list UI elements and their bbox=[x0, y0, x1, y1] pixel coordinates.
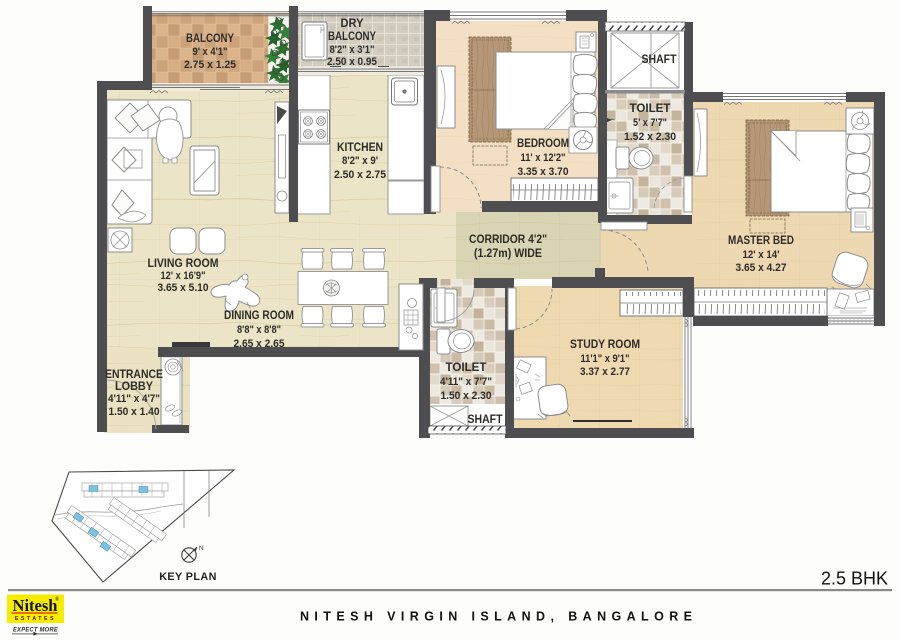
svg-text:1.52 x 2.30: 1.52 x 2.30 bbox=[624, 131, 676, 143]
svg-text:EXPECT MORE: EXPECT MORE bbox=[13, 627, 58, 634]
svg-text:LIVING ROOM: LIVING ROOM bbox=[148, 256, 219, 270]
svg-text:8'2" x 9': 8'2" x 9' bbox=[342, 155, 378, 167]
svg-text:2.50 x 2.75: 2.50 x 2.75 bbox=[334, 169, 387, 181]
svg-text:4'11" x 4'7": 4'11" x 4'7" bbox=[108, 393, 160, 405]
svg-text:Nitesh: Nitesh bbox=[13, 596, 58, 615]
svg-text:DINING ROOM: DINING ROOM bbox=[224, 308, 294, 322]
svg-text:BEDROOM: BEDROOM bbox=[517, 136, 569, 150]
svg-text:SHAFT: SHAFT bbox=[468, 412, 504, 426]
svg-text:BALCONY: BALCONY bbox=[186, 31, 234, 45]
svg-text:®: ® bbox=[55, 596, 60, 603]
svg-text:8'8" x 8'8": 8'8" x 8'8" bbox=[237, 324, 281, 336]
svg-text:(1.27m) WIDE: (1.27m) WIDE bbox=[474, 246, 542, 260]
svg-text:2.5 BHK: 2.5 BHK bbox=[821, 569, 888, 589]
svg-text:9' x 4'1": 9' x 4'1" bbox=[193, 46, 228, 58]
svg-text:DRY: DRY bbox=[341, 16, 364, 30]
svg-text:TOILET: TOILET bbox=[446, 360, 488, 374]
svg-text:12' x 16'9": 12' x 16'9" bbox=[161, 270, 206, 282]
svg-text:LOBBY: LOBBY bbox=[115, 379, 153, 393]
svg-text:ESTATES: ESTATES bbox=[15, 616, 56, 622]
svg-text:MASTER BED: MASTER BED bbox=[728, 233, 794, 247]
svg-text:KEY PLAN: KEY PLAN bbox=[159, 571, 217, 583]
svg-text:11'1" x 9'1": 11'1" x 9'1" bbox=[581, 353, 630, 365]
svg-text:3.65 x 5.10: 3.65 x 5.10 bbox=[158, 282, 209, 294]
svg-text:NITESH VIRGIN ISLAND, BANGALOR: NITESH VIRGIN ISLAND, BANGALORE bbox=[300, 610, 696, 624]
svg-text:3.35 x 3.70: 3.35 x 3.70 bbox=[518, 166, 569, 178]
svg-text:SHAFT: SHAFT bbox=[642, 52, 678, 66]
svg-text:12' x 14': 12' x 14' bbox=[743, 249, 780, 261]
svg-text:1.50 x 2.30: 1.50 x 2.30 bbox=[441, 390, 492, 402]
svg-text:4'11" x 7'7": 4'11" x 7'7" bbox=[440, 376, 492, 388]
svg-text:BALCONY: BALCONY bbox=[328, 29, 376, 43]
svg-text:KITCHEN: KITCHEN bbox=[337, 140, 383, 154]
svg-text:3.37 x 2.77: 3.37 x 2.77 bbox=[580, 366, 630, 378]
svg-text:5' x 7'7": 5' x 7'7" bbox=[633, 117, 667, 129]
svg-text:2.65 x 2.65: 2.65 x 2.65 bbox=[234, 338, 286, 350]
svg-text:CORRIDOR 4'2": CORRIDOR 4'2" bbox=[469, 232, 547, 246]
svg-text:11' x 12'2": 11' x 12'2" bbox=[521, 152, 566, 164]
svg-text:2.50 x 0.95: 2.50 x 0.95 bbox=[327, 56, 378, 68]
svg-text:8'2" x 3'1": 8'2" x 3'1" bbox=[330, 44, 375, 56]
svg-text:2.75 x 1.25: 2.75 x 1.25 bbox=[184, 59, 237, 71]
svg-text:N: N bbox=[199, 545, 204, 552]
svg-text:STUDY ROOM: STUDY ROOM bbox=[570, 337, 640, 351]
svg-text:TOILET: TOILET bbox=[630, 101, 672, 115]
svg-text:3.65 x 4.27: 3.65 x 4.27 bbox=[736, 262, 787, 274]
svg-text:1.50 x 1.40: 1.50 x 1.40 bbox=[109, 406, 160, 418]
